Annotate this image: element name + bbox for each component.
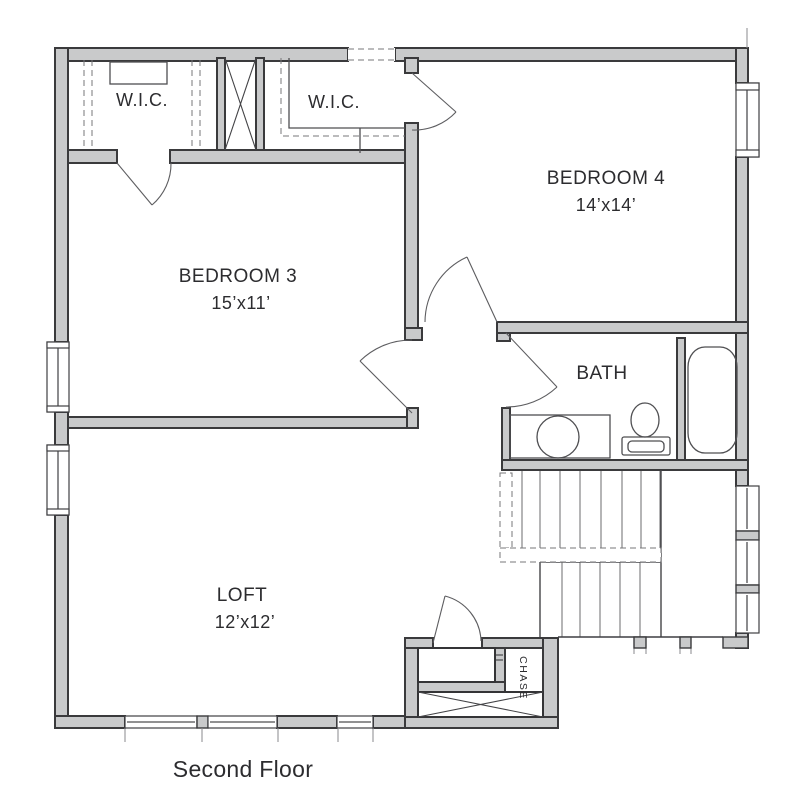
labels: W.I.C. W.I.C. BEDROOM 4 14’x14’ BEDROOM … (116, 90, 665, 782)
wall-segment (502, 460, 748, 470)
bathtub (688, 347, 737, 453)
wall-segment (736, 48, 748, 83)
sink (537, 416, 579, 458)
floor-plan-drawing: W.I.C. W.I.C. BEDROOM 4 14’x14’ BEDROOM … (0, 0, 800, 811)
chase-closet-box (418, 648, 495, 682)
wall-opening (348, 48, 395, 61)
wall-segment (405, 638, 433, 648)
stair-treads-upper (522, 471, 660, 548)
wall-segment (277, 716, 337, 728)
wall-segment (405, 638, 418, 728)
window-cap (47, 445, 69, 451)
floor-plan-page: W.I.C. W.I.C. BEDROOM 4 14’x14’ BEDROOM … (0, 0, 800, 811)
wall-segment (497, 322, 748, 333)
wall-segment (405, 58, 418, 73)
wall-segment (502, 408, 510, 463)
wall-segment (170, 150, 418, 163)
wall-segment (256, 58, 264, 150)
stair-railing (500, 473, 512, 548)
door-arc-bedroom3 (360, 340, 412, 361)
wall-segment (217, 58, 225, 150)
window-cap (47, 406, 69, 412)
toilet-bowl (631, 403, 659, 437)
window-mullion (736, 585, 759, 593)
window-cap (736, 83, 759, 90)
stairwell-post (680, 637, 691, 648)
bedroom3-dims: 15’x11’ (211, 293, 270, 313)
door-arc-bath (506, 387, 557, 407)
window-cap (736, 150, 759, 157)
bedroom4-label: BEDROOM 4 (547, 168, 666, 189)
chase-x-brace (225, 58, 256, 150)
wall-segment (405, 717, 558, 728)
wall-segment (55, 716, 125, 728)
stair-handrail (500, 548, 661, 562)
door-leaf-bath (506, 333, 557, 387)
vanity-counter (510, 415, 610, 458)
bath-label: BATH (576, 363, 627, 384)
toilet-tank-lid (628, 441, 664, 452)
closet-fittings (84, 58, 503, 660)
wall-segment (497, 333, 510, 341)
window-cap (47, 509, 69, 515)
wic1-label: W.I.C. (116, 90, 168, 110)
door-arc-chase-closet (445, 596, 481, 641)
stairwell-corner (723, 637, 748, 648)
wic2-label: W.I.C. (308, 92, 360, 112)
wall-segment (55, 48, 68, 342)
door-leaf-bedroom3 (360, 361, 412, 413)
window-mullion (197, 716, 208, 728)
wall-segment (543, 638, 558, 728)
wall-segment (495, 648, 505, 682)
wall-segment (405, 328, 422, 340)
walls (55, 48, 748, 728)
wall-segment (407, 408, 418, 428)
door-arc-wic1 (152, 163, 171, 205)
window-mullion (736, 531, 759, 540)
stairs (500, 470, 748, 648)
loft-label: LOFT (217, 585, 268, 606)
bedroom3-label: BEDROOM 3 (179, 266, 298, 287)
wall-segment (418, 682, 505, 692)
wall-segment (55, 412, 68, 445)
wall-segment (677, 338, 685, 460)
wall-segment (405, 123, 418, 328)
door-leaf-chase-closet (433, 596, 445, 643)
wall-segment (395, 48, 748, 61)
door-leaf-wic1 (117, 163, 152, 205)
window-cap (47, 342, 69, 348)
bedroom4-dims: 14’x14’ (576, 195, 637, 215)
loft-dims: 12’x12’ (215, 612, 276, 632)
door-arc-bedroom4 (425, 257, 467, 322)
stairwell-post (634, 637, 646, 648)
wall-segment (55, 48, 348, 61)
wall-segment (68, 417, 407, 428)
door-leaf-bedroom4 (467, 257, 497, 322)
door-leaf-wic2 (412, 73, 456, 112)
wall-segment (55, 515, 68, 728)
plan-caption: Second Floor (173, 756, 313, 782)
stair-treads-lower (562, 562, 640, 637)
closet-shelf (110, 62, 167, 84)
chase-label: CHASE (517, 656, 529, 700)
wall-segment (68, 150, 117, 163)
